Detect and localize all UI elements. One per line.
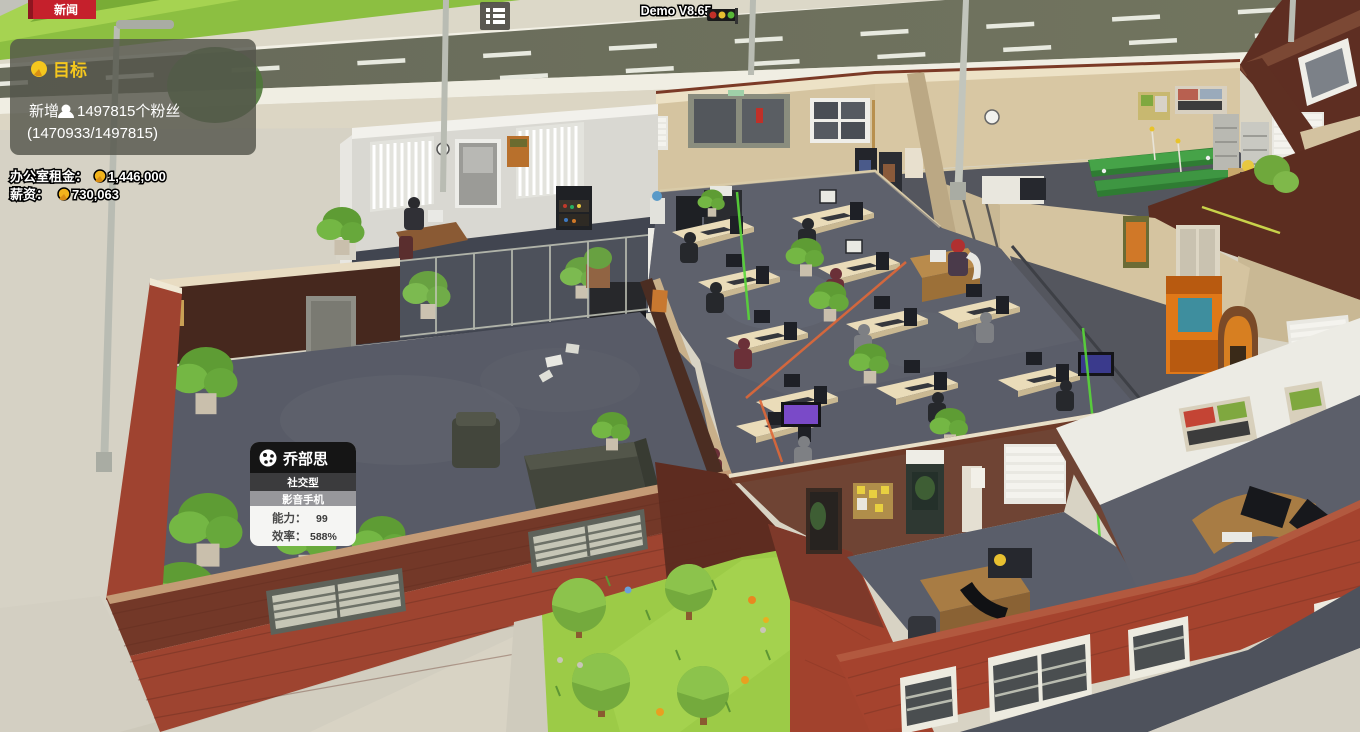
svg-text:1,446,000: 1,446,000: [108, 169, 166, 184]
svg-text:1497815个粉丝: 1497815个粉丝: [77, 103, 180, 120]
svg-text:(1470933/1497815): (1470933/1497815): [27, 125, 158, 142]
svg-text:新闻: 新闻: [54, 2, 78, 17]
svg-text:730,063: 730,063: [72, 187, 119, 202]
svg-text:办公室租金：: 办公室租金：: [10, 169, 88, 184]
svg-text:588%: 588%: [310, 531, 338, 543]
svg-text:影音手机: 影音手机: [282, 493, 324, 506]
svg-text:能力：: 能力：: [272, 511, 307, 525]
svg-text:社交型: 社交型: [286, 476, 319, 489]
svg-text:乔部思: 乔部思: [282, 450, 328, 468]
svg-text:效率：: 效率：: [272, 529, 307, 543]
svg-text:目标: 目标: [53, 60, 87, 80]
svg-text:薪资：: 薪资：: [10, 187, 49, 202]
svg-text:99: 99: [316, 513, 328, 525]
svg-text:Demo V8.65: Demo V8.65: [641, 4, 712, 18]
svg-text:新增: 新增: [29, 103, 59, 120]
